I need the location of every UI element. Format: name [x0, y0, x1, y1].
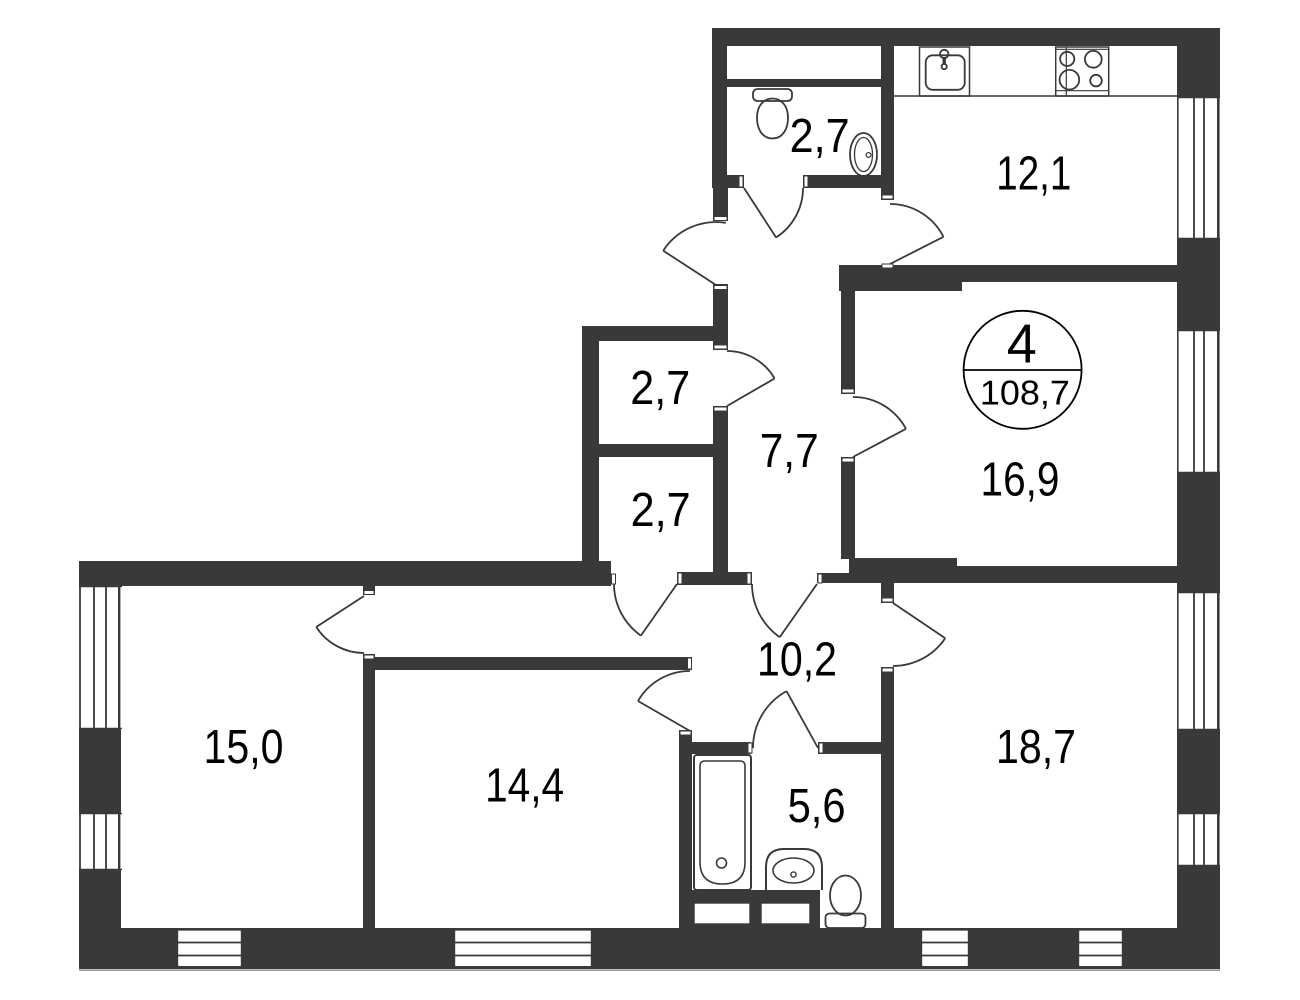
svg-text:12,1: 12,1 [996, 148, 1071, 201]
svg-text:4: 4 [1007, 312, 1037, 374]
svg-text:14,4: 14,4 [485, 760, 564, 813]
svg-text:18,7: 18,7 [996, 721, 1076, 774]
svg-text:16,9: 16,9 [981, 454, 1060, 507]
svg-text:2,7: 2,7 [630, 362, 690, 415]
svg-text:2,7: 2,7 [631, 484, 691, 537]
svg-text:108,7: 108,7 [980, 375, 1070, 413]
svg-text:7,7: 7,7 [760, 425, 819, 478]
svg-text:15,0: 15,0 [204, 721, 284, 774]
svg-text:10,2: 10,2 [757, 634, 837, 687]
svg-text:2,7: 2,7 [790, 110, 850, 163]
svg-text:5,6: 5,6 [788, 780, 846, 833]
